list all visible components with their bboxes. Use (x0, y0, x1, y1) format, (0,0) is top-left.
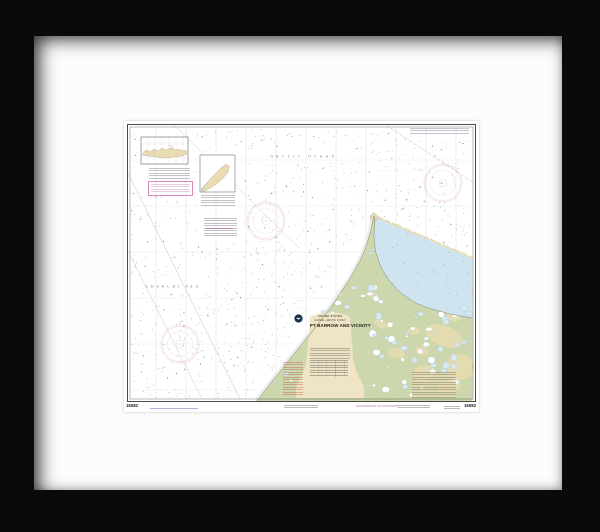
soundings-note: SOUNDINGS IN FATHOMS (356, 405, 397, 408)
chart-number-left: 16082 (126, 404, 138, 408)
title-block: UNITED STATES ALASKA - ARCTIC COAST PT B… (294, 314, 366, 328)
compass-rose (161, 322, 199, 364)
compass-rose (247, 199, 285, 241)
title-country: UNITED STATES (310, 315, 350, 317)
top-margin-note-text (410, 128, 469, 134)
inset-index-magenta-text (151, 184, 190, 194)
sea-label-arctic-ocean: ARCTIC OCEAN (242, 152, 366, 161)
chart-number-right: 16082 (464, 404, 476, 408)
noaa-logo-icon (294, 314, 303, 323)
compass-rose (424, 161, 462, 203)
title-region: ALASKA - ARCTIC COAST (312, 319, 348, 321)
warning-note-red (283, 362, 303, 395)
tide-table (310, 360, 348, 377)
framed-chart-photo: ARCTIC OCEAN CHUKCHI SEA UNITED STATES A… (0, 0, 600, 532)
title-scale-notes (310, 348, 350, 360)
chart-title: PT BARROW AND VICINITY (310, 323, 350, 326)
margin-note-right2 (444, 406, 460, 409)
sea-label-chukchi-sea: CHUKCHI SEA (134, 282, 212, 291)
margin-link-line (150, 408, 198, 409)
inset-ptbarrow-caption (201, 195, 235, 207)
inset-map-index (141, 137, 188, 164)
land-note (412, 372, 456, 398)
inset-map-pt-barrow (200, 155, 235, 192)
inset-index-caption (149, 168, 190, 179)
inset-index-magenta-note (148, 181, 193, 197)
chart-paper: ARCTIC OCEAN CHUKCHI SEA UNITED STATES A… (124, 121, 479, 412)
inset-ptbarrow-magenta-line (206, 228, 234, 229)
margin-note-left (284, 405, 318, 410)
margin-note-right (398, 405, 430, 410)
